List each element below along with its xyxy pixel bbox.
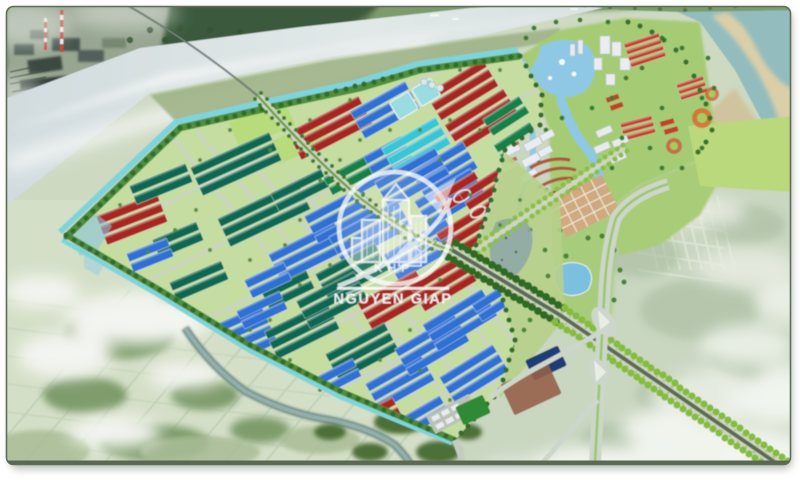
svg-text:NGUYEN GIAP: NGUYEN GIAP (333, 292, 452, 308)
svg-text:KHP: KHP (374, 261, 414, 275)
